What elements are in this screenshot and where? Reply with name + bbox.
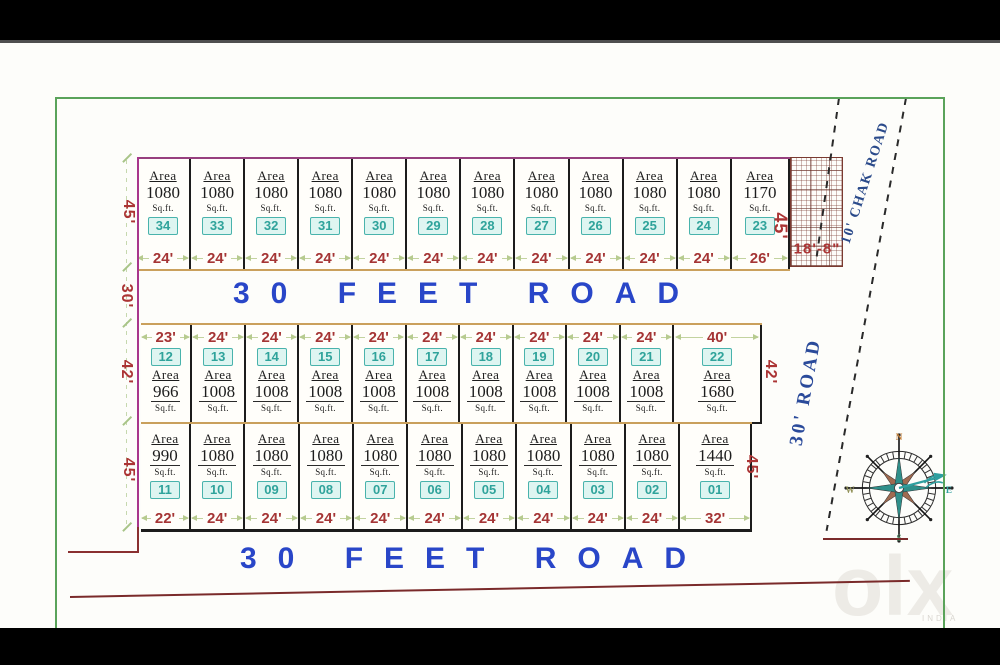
plot-area-unit: Sq.ft. — [704, 466, 725, 478]
plot-width-dimension: 24' — [464, 508, 514, 528]
plot-area-value: 1080 — [416, 446, 454, 466]
plot-width-dimension: 24' — [518, 508, 568, 528]
plot-width-dimension: 24' — [462, 248, 512, 268]
plot-width-dimension: 24' — [408, 327, 457, 347]
plot-area-value: 1008 — [627, 382, 665, 402]
dim-right-middle: 42' — [761, 360, 779, 385]
plot-cell: Area1080Sq.ft.0524' — [463, 424, 517, 529]
plot-width-label: 24' — [638, 510, 666, 527]
plot-width-label: 24' — [584, 510, 612, 527]
plot-area-value: 1080 — [146, 183, 180, 202]
plot-area-value: 1080 — [200, 183, 234, 202]
plot-number-badge: 18 — [471, 348, 501, 366]
plot-width-label: 24' — [203, 250, 231, 267]
plot-area-unit: Sq.ft. — [261, 466, 282, 478]
plot-width-label: 24' — [312, 510, 340, 527]
plot-area-value: 1080 — [470, 183, 504, 202]
plot-width-label: 24' — [257, 510, 285, 527]
plot-width-label: 24' — [472, 329, 500, 346]
plot-cell: 24'19Area1008Sq.ft. — [514, 325, 568, 422]
plot-area-unit: Sq.ft. — [261, 202, 282, 214]
svg-text:E: E — [946, 485, 952, 495]
plot-cell: Area1080Sq.ft.3124' — [299, 159, 353, 269]
plot-row-bottom: Area990Sq.ft.1122'Area1080Sq.ft.1024'Are… — [141, 422, 752, 532]
plot-width-dimension: 24' — [571, 248, 621, 268]
plot-width-dimension: 24' — [301, 508, 351, 528]
dim-right-top: 45' — [770, 212, 791, 239]
plot-number-badge: 02 — [637, 481, 667, 499]
plot-area-unit: Sq.ft. — [639, 202, 660, 214]
plot-area-label: Area — [633, 367, 660, 382]
letterbox-bottom-bar — [0, 628, 1000, 665]
plot-width-label: 24' — [311, 329, 339, 346]
plot-width-label: 24' — [529, 510, 557, 527]
plot-area-label: Area — [579, 367, 606, 382]
plot-width-label: 40' — [703, 329, 731, 346]
plot-width-dimension: 24' — [300, 248, 350, 268]
plot-cell: Area1080Sq.ft.2624' — [570, 159, 624, 269]
plot-area-value: 1080 — [307, 446, 345, 466]
plot-area-label: Area — [312, 367, 339, 382]
plot-width-dimension: 23' — [142, 327, 189, 347]
plot-area-value: 1080 — [524, 446, 562, 466]
plot-cell: 24'17Area1008Sq.ft. — [407, 325, 461, 422]
plot-number-badge: 16 — [364, 348, 394, 366]
chak-road-label: 10' CHAK ROAD — [839, 120, 894, 246]
plot-number-badge: 33 — [202, 217, 232, 235]
plot-width-label: 26' — [746, 250, 774, 267]
plot-width-label: 24' — [365, 250, 393, 267]
plot-width-dimension: 24' — [622, 327, 671, 347]
site-plan-image: Area1080Sq.ft.3424'Area1080Sq.ft.3324'Ar… — [0, 0, 1000, 665]
plot-width-label: 24' — [419, 250, 447, 267]
plot-area-label: Area — [690, 168, 717, 183]
plot-area-label: Area — [526, 367, 553, 382]
bottom-left-boundary-step — [137, 527, 139, 553]
plot-area-label: Area — [582, 168, 609, 183]
bottom-left-boundary-line — [68, 551, 139, 553]
plot-area-value: 1008 — [253, 382, 291, 402]
plot-area-unit: Sq.ft. — [207, 402, 228, 414]
plot-area-label: Area — [475, 431, 502, 446]
plot-area-label: Area — [474, 168, 501, 183]
plot-cell: 24'20Area1008Sq.ft. — [567, 325, 621, 422]
plot-width-dimension: 24' — [679, 248, 729, 268]
plot-area-unit: Sq.ft. — [154, 466, 175, 478]
plot-area-unit: Sq.ft. — [529, 402, 550, 414]
plot-number-badge: 22 — [702, 348, 732, 366]
plot-cell: 24'15Area1008Sq.ft. — [299, 325, 353, 422]
plot-width-dimension: 24' — [515, 327, 564, 347]
plot-width-dimension: 32' — [681, 508, 749, 528]
bottom-right-road-edge-line — [823, 538, 908, 540]
plot-width-label: 24' — [635, 250, 663, 267]
plot-area-unit: Sq.ft. — [478, 466, 499, 478]
plot-area-label: Area — [530, 431, 557, 446]
plot-area-value: 1080 — [633, 183, 667, 202]
plot-number-badge: 31 — [310, 217, 340, 235]
plot-area-unit: Sq.ft. — [706, 402, 727, 414]
plot-width-dimension: 24' — [246, 508, 296, 528]
plot-area-label: Area — [420, 168, 447, 183]
plot-width-label: 24' — [365, 329, 393, 346]
plot-area-unit: Sq.ft. — [422, 402, 443, 414]
dimension-tick — [122, 262, 132, 272]
plot-number-badge: 25 — [635, 217, 665, 235]
plot-cell: Area1080Sq.ft.3424' — [137, 159, 191, 269]
plot-width-dimension: 26' — [733, 248, 787, 268]
compass-rose-icon: NESW — [843, 432, 955, 544]
plot-number-badge: 20 — [578, 348, 608, 366]
plot-number-badge: 24 — [689, 217, 719, 235]
plot-area-label: Area — [636, 168, 663, 183]
plot-cell: Area1080Sq.ft.2524' — [624, 159, 678, 269]
plot-width-dimension: 24' — [138, 248, 188, 268]
plot-area-value: 1008 — [360, 382, 398, 402]
plot-number-badge: 14 — [257, 348, 287, 366]
plot-area-unit: Sq.ft. — [424, 466, 445, 478]
plot-area-label: Area — [312, 168, 339, 183]
plot-number-badge: 15 — [310, 348, 340, 366]
plot-area-value: 1008 — [574, 382, 612, 402]
plot-width-label: 24' — [579, 329, 607, 346]
svg-text:N: N — [896, 432, 903, 442]
plot-cell: Area1080Sq.ft.2724' — [515, 159, 569, 269]
plot-width-label: 24' — [581, 250, 609, 267]
plot-area-unit: Sq.ft. — [475, 402, 496, 414]
plot-area-value: 1080 — [198, 446, 236, 466]
plot-width-label: 24' — [690, 250, 718, 267]
plot-area-value: 1080 — [470, 446, 508, 466]
plot-area-label: Area — [149, 168, 176, 183]
plot-area-value: 990 — [150, 446, 180, 466]
plot-cell: Area1080Sq.ft.3224' — [245, 159, 299, 269]
plot-number-badge: 10 — [202, 481, 232, 499]
plot-area-unit: Sq.ft. — [152, 202, 173, 214]
dim-left-road: 30' — [117, 284, 135, 309]
plot-width-dimension: 40' — [676, 327, 758, 347]
plot-width-label: 24' — [525, 329, 553, 346]
dim-left-middle: 42' — [117, 360, 135, 385]
plot-area-value: 966 — [151, 382, 181, 402]
plot-area-value: 1080 — [362, 183, 396, 202]
plot-area-unit: Sq.ft. — [368, 402, 389, 414]
dimension-tick — [122, 318, 132, 328]
plot-width-dimension: 24' — [192, 508, 242, 528]
plot-cell: Area1080Sq.ft.0824' — [300, 424, 354, 529]
plot-cell: Area1080Sq.ft.2924' — [407, 159, 461, 269]
plot-cell: Area1080Sq.ft.2824' — [461, 159, 515, 269]
plot-width-dimension: 24' — [625, 248, 675, 268]
plot-area-unit: Sq.ft. — [533, 466, 554, 478]
dim-hatch-width: 18'-8" — [794, 241, 841, 258]
plot-width-label: 24' — [420, 510, 448, 527]
plot-width-dimension: 22' — [142, 508, 188, 528]
bottom-road-edge-line — [70, 580, 910, 598]
plot-width-label: 24' — [366, 510, 394, 527]
plot-area-label: Area — [204, 431, 231, 446]
plot-area-value: 1680 — [698, 382, 736, 402]
plot-number-badge: 27 — [526, 217, 556, 235]
plot-area-unit: Sq.ft. — [582, 402, 603, 414]
plot-width-label: 24' — [311, 250, 339, 267]
plot-area-value: 1080 — [253, 446, 291, 466]
plot-area-unit: Sq.ft. — [477, 202, 498, 214]
plot-area-unit: Sq.ft. — [155, 402, 176, 414]
plot-cell: 24'21Area1008Sq.ft. — [621, 325, 675, 422]
plot-area-value: 1080 — [633, 446, 671, 466]
plot-cell: 24'16Area1008Sq.ft. — [353, 325, 407, 422]
plot-number-badge: 06 — [420, 481, 450, 499]
plot-width-label: 22' — [151, 510, 179, 527]
plot-area-label: Area — [702, 431, 729, 446]
plot-area-label: Area — [584, 431, 611, 446]
plot-area-label: Area — [638, 431, 665, 446]
plot-area-label: Area — [367, 431, 394, 446]
plot-area-unit: Sq.ft. — [531, 202, 552, 214]
plot-area-value: 1080 — [308, 183, 342, 202]
plot-number-badge: 34 — [148, 217, 178, 235]
plot-number-badge: 32 — [256, 217, 286, 235]
plot-width-label: 32' — [701, 510, 729, 527]
plot-width-dimension: 24' — [300, 327, 349, 347]
plot-cell: Area990Sq.ft.1122' — [141, 424, 191, 529]
plot-area-unit: Sq.ft. — [315, 202, 336, 214]
dim-left-top: 45' — [119, 200, 137, 225]
plot-width-label: 24' — [203, 510, 231, 527]
plot-number-badge: 08 — [311, 481, 341, 499]
plot-area-unit: Sq.ft. — [206, 202, 227, 214]
plot-width-label: 24' — [632, 329, 660, 346]
plot-area-value: 1170 — [743, 183, 776, 202]
plot-number-badge: 21 — [631, 348, 661, 366]
plot-row-top: Area1080Sq.ft.3424'Area1080Sq.ft.3324'Ar… — [137, 157, 790, 271]
plot-cell: 24'14Area1008Sq.ft. — [246, 325, 300, 422]
plot-row-middle: 23'12Area966Sq.ft.24'13Area1008Sq.ft.24'… — [141, 323, 762, 424]
plot-width-label: 24' — [527, 250, 555, 267]
plot-cell: 40'22Area1680Sq.ft. — [674, 325, 762, 422]
dim-right-bottom: 45' — [742, 455, 760, 480]
plot-area-value: 1080 — [579, 183, 613, 202]
plot-area-unit: Sq.ft. — [207, 466, 228, 478]
plot-number-badge: 09 — [257, 481, 287, 499]
plot-number-badge: 05 — [474, 481, 504, 499]
plot-number-badge: 04 — [528, 481, 558, 499]
plot-width-dimension: 24' — [246, 248, 296, 268]
plot-cell: 23'12Area966Sq.ft. — [141, 325, 192, 422]
plot-area-value: 1080 — [687, 183, 721, 202]
dimension-tick — [122, 153, 132, 163]
road-bottom-label: 30 FEET ROAD — [240, 542, 707, 576]
plot-cell: Area1080Sq.ft.0624' — [408, 424, 462, 529]
plot-cell: Area1080Sq.ft.2424' — [678, 159, 732, 269]
plot-number-badge: 01 — [700, 481, 730, 499]
plot-width-dimension: 24' — [627, 508, 677, 528]
plot-area-value: 1008 — [467, 382, 505, 402]
plot-cell: Area1080Sq.ft.0924' — [245, 424, 299, 529]
plot-area-value: 1080 — [524, 183, 558, 202]
plot-width-label: 24' — [257, 250, 285, 267]
plot-area-value: 1440 — [696, 446, 734, 466]
plot-number-badge: 13 — [203, 348, 233, 366]
plot-cell: Area1080Sq.ft.0424' — [517, 424, 571, 529]
plot-area-label: Area — [152, 367, 179, 382]
plot-area-unit: Sq.ft. — [641, 466, 662, 478]
side-road-label: 30' ROAD — [786, 336, 827, 447]
plot-area-label: Area — [203, 168, 230, 183]
plot-area-unit: Sq.ft. — [315, 466, 336, 478]
plot-number-badge: 03 — [583, 481, 613, 499]
plot-area-unit: Sq.ft. — [636, 402, 657, 414]
plot-area-label: Area — [365, 367, 392, 382]
plot-cell: Area1080Sq.ft.3024' — [353, 159, 407, 269]
plot-cell: 24'18Area1008Sq.ft. — [460, 325, 514, 422]
olx-watermark-country: INDIA — [922, 614, 958, 623]
plot-number-badge: 07 — [365, 481, 395, 499]
plot-area-label: Area — [151, 431, 178, 446]
plot-width-dimension: 24' — [354, 248, 404, 268]
plot-area-value: 1080 — [361, 446, 399, 466]
road-top-label: 30 FEET ROAD — [233, 277, 700, 311]
plot-area-value: 1008 — [199, 382, 237, 402]
plot-number-badge: 26 — [581, 217, 611, 235]
plot-area-unit: Sq.ft. — [370, 466, 391, 478]
plot-area-value: 1008 — [306, 382, 344, 402]
plot-area-label: Area — [258, 431, 285, 446]
plot-width-dimension: 24' — [409, 508, 459, 528]
plot-area-label: Area — [528, 168, 555, 183]
plot-area-unit: Sq.ft. — [261, 402, 282, 414]
plot-width-dimension: 24' — [408, 248, 458, 268]
plot-area-value: 1080 — [416, 183, 450, 202]
plot-number-badge: 19 — [524, 348, 554, 366]
plot-width-dimension: 24' — [461, 327, 510, 347]
plot-area-unit: Sq.ft. — [587, 466, 608, 478]
plot-width-label: 24' — [475, 510, 503, 527]
plot-area-label: Area — [312, 431, 339, 446]
svg-text:W: W — [846, 485, 856, 495]
plot-width-label: 24' — [418, 329, 446, 346]
left-boundary-line — [137, 157, 139, 527]
plot-width-label: 24' — [473, 250, 501, 267]
plot-cell: Area1080Sq.ft.0224' — [626, 424, 680, 529]
plot-width-dimension: 24' — [573, 508, 623, 528]
plot-number-badge: 30 — [364, 217, 394, 235]
plot-area-value: 1008 — [413, 382, 451, 402]
plot-area-value: 1080 — [254, 183, 288, 202]
plot-width-dimension: 24' — [516, 248, 566, 268]
plot-width-label: 24' — [258, 329, 286, 346]
plot-number-badge: 28 — [472, 217, 502, 235]
dim-left-bottom: 45' — [119, 458, 137, 483]
plot-area-unit: Sq.ft. — [749, 202, 770, 214]
plot-area-label: Area — [205, 367, 232, 382]
plot-area-unit: Sq.ft. — [369, 202, 390, 214]
letterbox-top-bar — [0, 0, 1000, 43]
plot-area-unit: Sq.ft. — [693, 202, 714, 214]
plot-width-dimension: 24' — [247, 327, 296, 347]
plot-cell: 24'13Area1008Sq.ft. — [192, 325, 246, 422]
plot-area-label: Area — [472, 367, 499, 382]
plot-cell: Area1080Sq.ft.0724' — [354, 424, 408, 529]
plot-width-label: 24' — [149, 250, 177, 267]
plot-area-value: 1008 — [520, 382, 558, 402]
plot-area-label: Area — [421, 431, 448, 446]
plot-area-label: Area — [258, 367, 285, 382]
plot-width-dimension: 24' — [193, 327, 242, 347]
plot-width-label: 24' — [204, 329, 232, 346]
plot-cell: Area1080Sq.ft.3324' — [191, 159, 245, 269]
plot-area-label: Area — [703, 367, 730, 382]
plot-number-badge: 12 — [151, 348, 181, 366]
plot-area-label: Area — [258, 168, 285, 183]
plot-area-unit: Sq.ft. — [315, 402, 336, 414]
plot-cell: Area1080Sq.ft.0324' — [572, 424, 626, 529]
plot-number-badge: 17 — [417, 348, 447, 366]
dimension-tick — [122, 416, 132, 426]
dimension-tick — [122, 522, 132, 532]
plot-width-dimension: 24' — [355, 508, 405, 528]
plot-width-dimension: 24' — [354, 327, 403, 347]
plot-area-label: Area — [419, 367, 446, 382]
plot-number-badge: 11 — [150, 481, 180, 499]
plot-width-dimension: 24' — [192, 248, 242, 268]
plot-area-value: 1080 — [579, 446, 617, 466]
plot-number-badge: 29 — [418, 217, 448, 235]
plot-area-unit: Sq.ft. — [585, 202, 606, 214]
plot-width-label: 23' — [152, 329, 180, 346]
plot-area-label: Area — [366, 168, 393, 183]
plot-area-label: Area — [746, 168, 773, 183]
plot-cell: Area1080Sq.ft.1024' — [191, 424, 245, 529]
plot-width-dimension: 24' — [568, 327, 617, 347]
plot-area-unit: Sq.ft. — [423, 202, 444, 214]
